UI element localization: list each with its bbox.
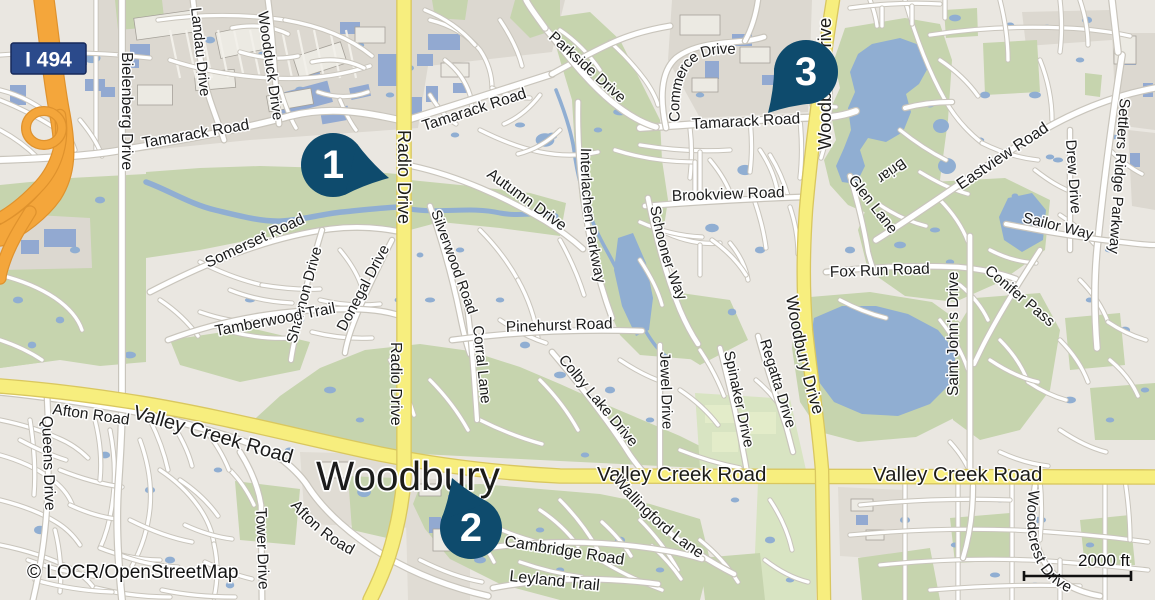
svg-text:2000 ft: 2000 ft [1078, 551, 1130, 570]
svg-text:Jewel Drive: Jewel Drive [656, 352, 676, 430]
svg-text:Fox Run Road: Fox Run Road [830, 261, 930, 281]
svg-text:Woodbury: Woodbury [316, 453, 501, 499]
svg-text:Valley Creek Road: Valley Creek Road [873, 463, 1042, 486]
svg-text:Bielenberg Drive: Bielenberg Drive [118, 52, 135, 170]
svg-text:1: 1 [322, 143, 344, 187]
svg-text:Radio Drive: Radio Drive [394, 130, 414, 224]
svg-text:© LOCR/OpenStreetMap: © LOCR/OpenStreetMap [27, 562, 238, 583]
svg-text:Saint John's Drive: Saint John's Drive [945, 272, 962, 396]
svg-text:2: 2 [460, 506, 482, 550]
svg-text:Radio Drive: Radio Drive [387, 342, 404, 426]
svg-text:3: 3 [795, 50, 817, 94]
svg-text:Tower Drive: Tower Drive [252, 508, 272, 590]
svg-text:I 494: I 494 [25, 49, 72, 72]
svg-text:Queens Drive: Queens Drive [38, 416, 58, 511]
